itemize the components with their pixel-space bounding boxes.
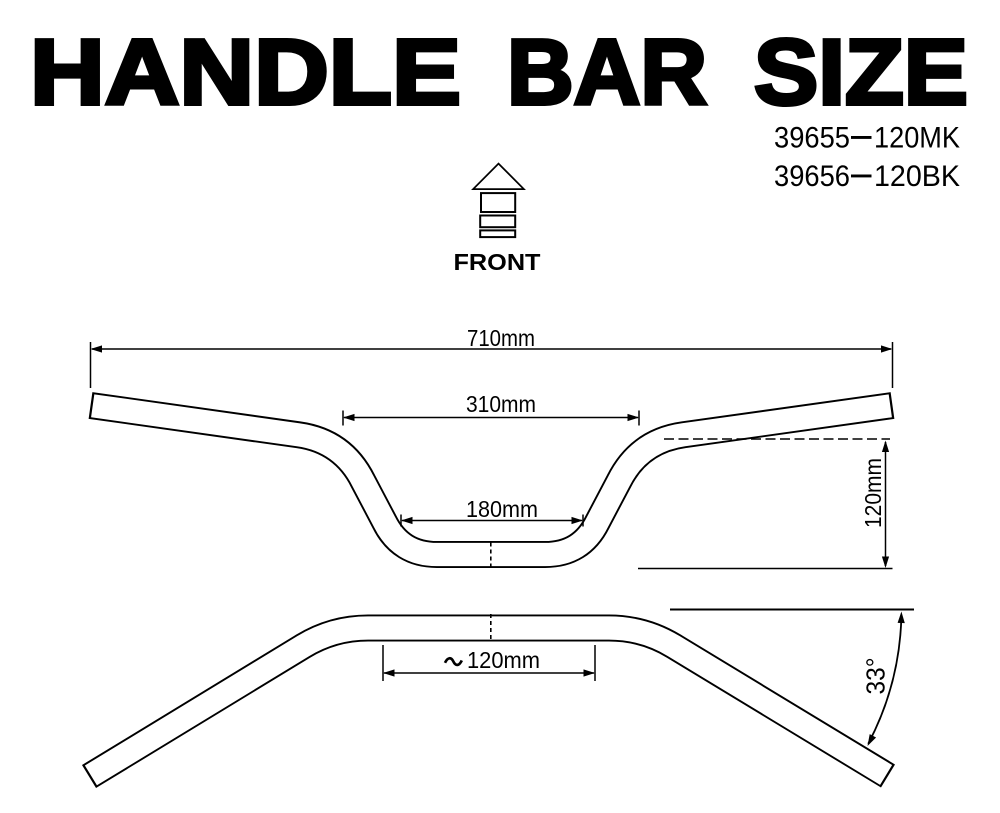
svg-text:39655: 39655 (774, 122, 850, 155)
svg-text:FRONT: FRONT (454, 249, 542, 275)
svg-text:180mm: 180mm (466, 496, 538, 522)
svg-text:HANDLE: HANDLE (30, 20, 461, 124)
svg-text:310mm: 310mm (466, 391, 536, 417)
svg-text:710mm: 710mm (467, 325, 535, 351)
svg-text:120mm: 120mm (860, 458, 886, 528)
svg-text:33°: 33° (861, 658, 891, 695)
svg-text:SIZE: SIZE (754, 20, 968, 124)
svg-text:120mm: 120mm (467, 647, 540, 673)
svg-text:BAR: BAR (507, 20, 707, 124)
svg-text:120BK: 120BK (874, 160, 960, 193)
svg-text:120MK: 120MK (874, 122, 960, 155)
svg-text:39656: 39656 (774, 160, 850, 193)
